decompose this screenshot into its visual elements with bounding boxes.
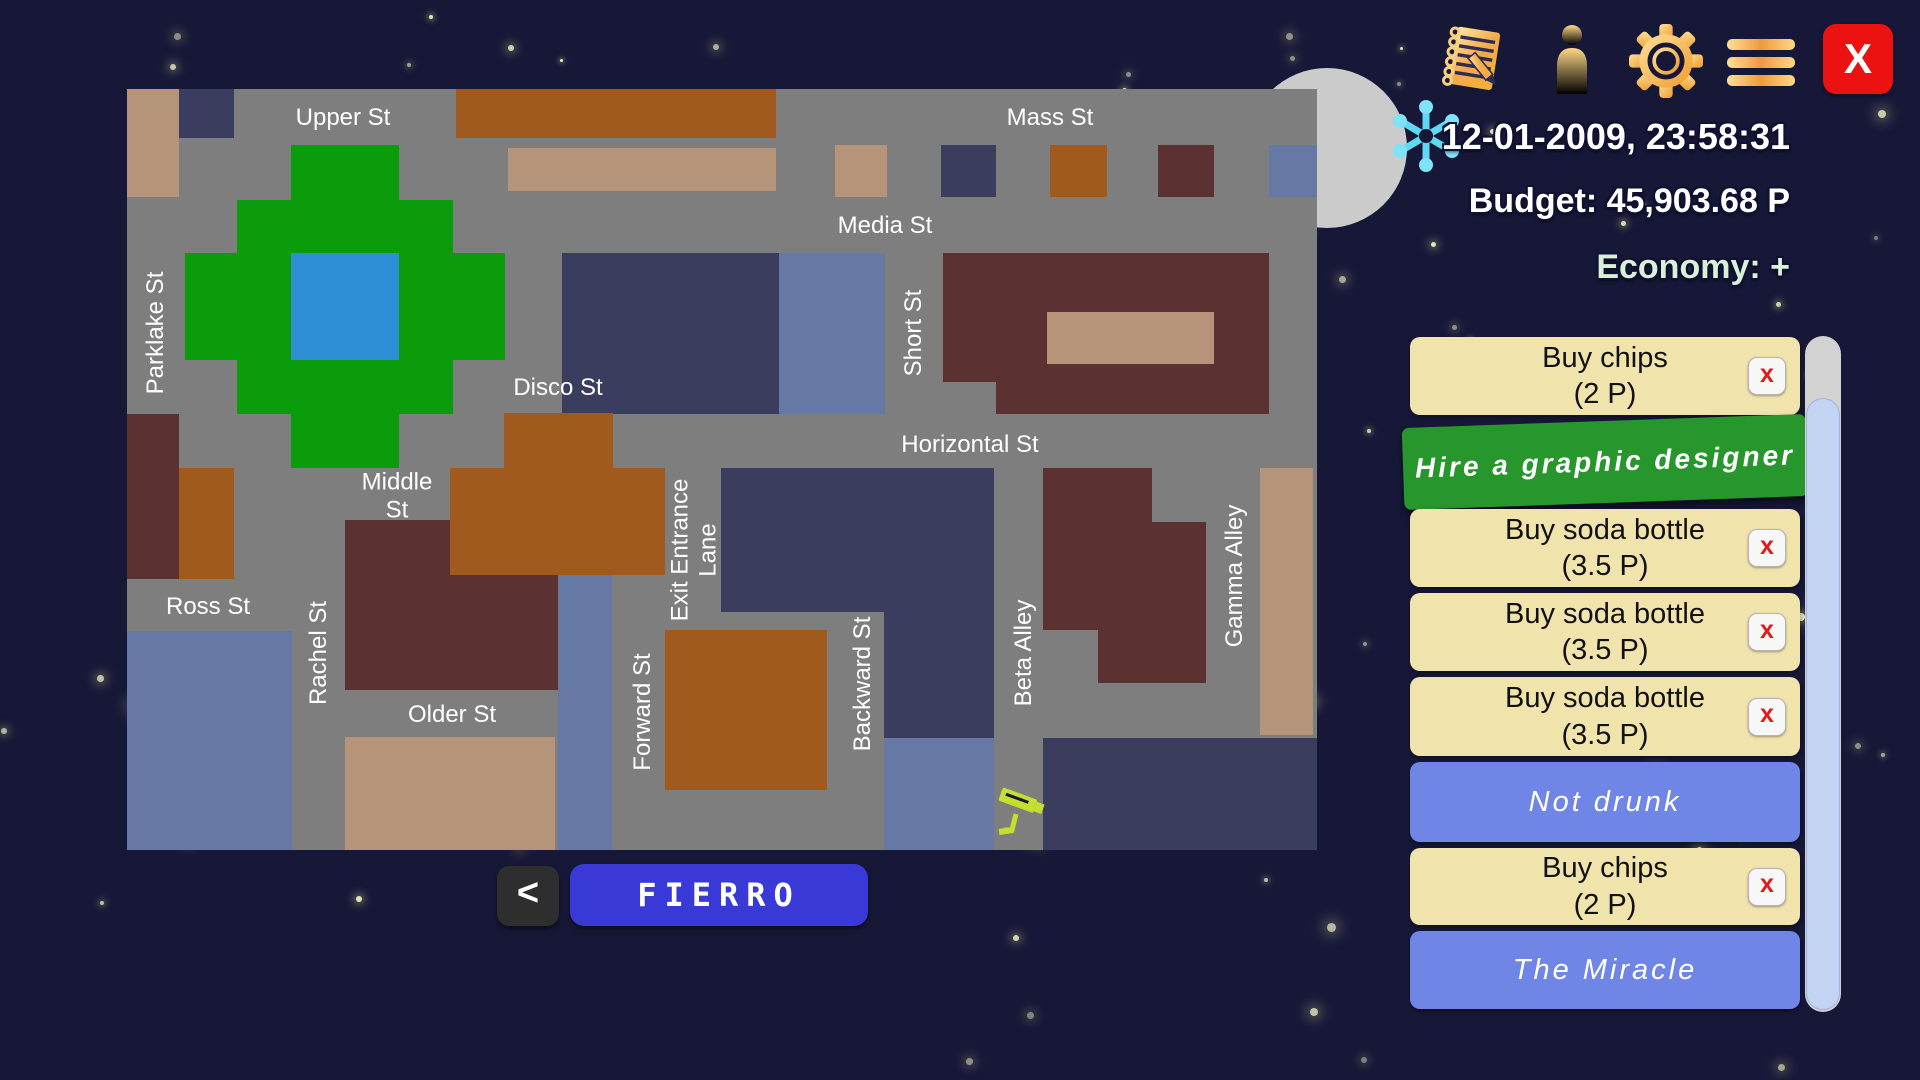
street-label-parklake-st: Parklake St <box>142 272 170 395</box>
star <box>1286 33 1293 40</box>
brown-building <box>1050 145 1107 197</box>
order-item[interactable]: Buy soda bottle(3.5 P)x <box>1410 509 1800 587</box>
star <box>97 675 104 682</box>
tan-building <box>508 148 776 191</box>
star <box>1 728 7 734</box>
star <box>1339 276 1346 283</box>
navy-building <box>884 612 994 738</box>
delete-order-button[interactable]: x <box>1748 529 1786 567</box>
star <box>1264 878 1268 882</box>
star <box>1327 923 1336 932</box>
maroon-building <box>1043 468 1152 630</box>
order-item[interactable]: Buy chips(2 P)x <box>1410 848 1800 925</box>
tan-building <box>345 737 555 850</box>
maroon-building <box>1158 145 1214 197</box>
maroon-building <box>1098 630 1206 683</box>
steel-building <box>779 253 885 414</box>
maroon-building <box>127 414 179 579</box>
star <box>560 59 563 62</box>
star <box>966 1058 973 1065</box>
delete-order-button[interactable]: x <box>1748 357 1786 395</box>
status-button[interactable]: Not drunk <box>1410 762 1800 842</box>
order-label: Buy soda bottle(3.5 P) <box>1505 512 1705 585</box>
star <box>1126 72 1131 77</box>
button-label: Not drunk <box>1529 786 1682 819</box>
star <box>1400 47 1403 50</box>
tan-building <box>835 145 887 197</box>
star <box>1363 642 1367 646</box>
star <box>1367 429 1371 433</box>
order-item[interactable]: Buy chips(2 P)x <box>1410 337 1800 415</box>
star <box>1310 1008 1318 1016</box>
street-label-media-st: Media St <box>838 212 933 240</box>
navy-building <box>721 468 994 612</box>
street-label-short-st: Short St <box>900 290 928 377</box>
task-list-scrollbar[interactable] <box>1805 336 1841 1012</box>
star <box>407 63 411 67</box>
tan-building <box>1047 312 1214 364</box>
star <box>1874 236 1878 240</box>
brown-building <box>665 630 827 790</box>
delete-order-button[interactable]: x <box>1748 698 1786 736</box>
star <box>100 901 104 905</box>
street-label-exit-entrance-lane: Exit EntranceLane <box>667 479 724 622</box>
brown-building <box>179 468 234 579</box>
street-label-beta-alley: Beta Alley <box>1010 600 1038 707</box>
street-label-horizontal-st: Horizontal St <box>901 431 1038 459</box>
star <box>1881 753 1885 757</box>
steel-building <box>1269 145 1317 197</box>
star <box>713 44 719 50</box>
street-label-forward-st: Forward St <box>629 653 657 770</box>
star <box>1013 935 1019 941</box>
street-label-ross-st: Ross St <box>166 593 250 621</box>
maroon-building <box>996 382 1269 414</box>
city-map[interactable]: Upper StMass StMedia StParklake StShort … <box>127 89 1317 850</box>
tan-building <box>1260 468 1313 735</box>
brown-building <box>456 89 776 138</box>
delete-order-button[interactable]: x <box>1748 613 1786 651</box>
button-label: The Miracle <box>1513 954 1698 987</box>
star <box>1027 1012 1034 1019</box>
street-label-upper-st: Upper St <box>296 104 391 132</box>
star <box>170 64 176 70</box>
steel-building <box>127 631 292 850</box>
delete-order-button[interactable]: x <box>1748 868 1786 906</box>
order-label: Buy chips(2 P) <box>1542 850 1668 923</box>
scrollbar-thumb[interactable] <box>1806 398 1840 1010</box>
city-name-button[interactable]: FIERRO <box>570 864 868 926</box>
order-label: Buy chips(2 P) <box>1542 340 1668 413</box>
star <box>174 33 181 40</box>
star <box>1290 56 1295 61</box>
navy-building <box>941 145 996 197</box>
navy-building <box>179 89 234 138</box>
street-label-older-st: Older St <box>408 701 496 729</box>
status-button[interactable]: The Miracle <box>1410 931 1800 1009</box>
star <box>508 45 514 51</box>
star <box>1878 110 1886 118</box>
star <box>1361 1057 1367 1063</box>
button-label: Hire a graphic designer <box>1414 439 1795 484</box>
star <box>356 896 362 902</box>
brown-building <box>450 468 665 575</box>
task-list: Buy chips(2 P)xHire a graphic designerBu… <box>1410 0 1800 1080</box>
street-label-middle-st: MiddleSt <box>362 469 433 526</box>
street-label-mass-st: Mass St <box>1007 104 1094 132</box>
close-button[interactable]: X <box>1823 24 1893 94</box>
tan-building <box>127 89 179 197</box>
game-screen: Upper StMass StMedia StParklake StShort … <box>0 0 1920 1080</box>
action-button[interactable]: Hire a graphic designer <box>1402 414 1809 510</box>
street-label-rachel-st: Rachel St <box>305 601 333 705</box>
navy-building <box>1043 738 1317 850</box>
star <box>429 15 433 19</box>
street-label-disco-st: Disco St <box>513 374 602 402</box>
lake-building <box>291 253 399 360</box>
steel-building <box>884 738 994 850</box>
star <box>1397 82 1401 86</box>
order-label: Buy soda bottle(3.5 P) <box>1505 596 1705 669</box>
order-label: Buy soda bottle(3.5 P) <box>1505 680 1705 753</box>
order-item[interactable]: Buy soda bottle(3.5 P)x <box>1410 677 1800 756</box>
back-button[interactable]: < <box>497 866 559 926</box>
street-label-gamma-alley: Gamma Alley <box>1221 505 1249 648</box>
steel-building <box>558 575 612 850</box>
star <box>1855 743 1861 749</box>
security-camera-icon[interactable] <box>996 784 1048 840</box>
order-item[interactable]: Buy soda bottle(3.5 P)x <box>1410 593 1800 671</box>
street-label-backward-st: Backward St <box>849 617 877 752</box>
brown-building <box>504 413 613 468</box>
